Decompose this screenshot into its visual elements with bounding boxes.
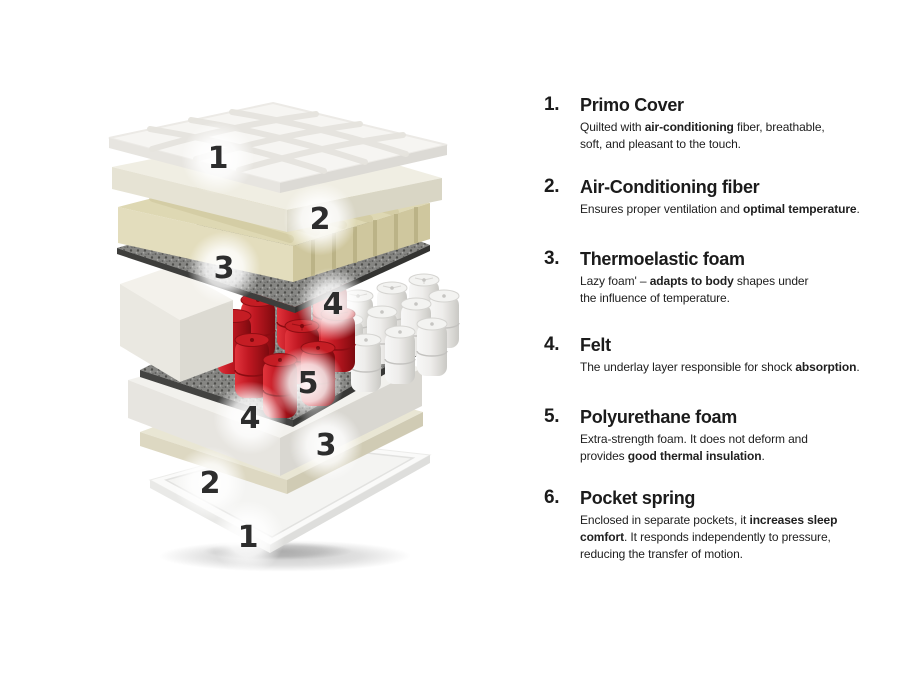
- legend-item-pocket-spring: 6. Pocket spring Enclosed in separate po…: [544, 487, 837, 563]
- badge-number: 1: [208, 141, 229, 176]
- legend-item-polyurethane-foam: 5. Polyurethane foam Extra-strength foam…: [544, 406, 808, 465]
- badge-number: 4: [323, 287, 344, 322]
- layer-badge-3-bottom: 3: [289, 408, 363, 482]
- badge-number: 2: [200, 466, 221, 501]
- item-description: Enclosed in separate pockets, it increas…: [580, 512, 837, 563]
- layer-badge-4-bottom: 4: [213, 381, 287, 455]
- legend-item-felt: 4. Felt The underlay layer responsible f…: [544, 334, 860, 376]
- infographic: 1 2 3 4 5 4 3 2 1 1. Primo Cover Quilted…: [0, 0, 900, 675]
- legend-item-primo-cover: 1. Primo Cover Quilted with air-conditio…: [544, 94, 825, 153]
- item-title: Thermoelastic foam: [580, 248, 808, 270]
- item-description: Extra-strength foam. It does not deform …: [580, 431, 808, 465]
- layer-badge-1-top: 1: [181, 121, 255, 195]
- item-description: The underlay layer responsible for shock…: [580, 359, 860, 376]
- item-number: 5.: [544, 406, 580, 428]
- item-number: 1.: [544, 94, 580, 116]
- item-description: Ensures proper ventilation and optimal t…: [580, 201, 860, 218]
- legend-item-thermoelastic-foam: 3. Thermoelastic foam Lazy foam' – adapt…: [544, 248, 808, 307]
- badge-number: 3: [214, 251, 235, 286]
- item-title: Primo Cover: [580, 94, 825, 116]
- badge-number: 4: [240, 401, 261, 436]
- pocket-spring-white: [351, 334, 381, 392]
- layer-badge-4-top: 4: [296, 267, 370, 341]
- pocket-spring-white: [417, 318, 447, 376]
- layer-badge-2-top: 2: [283, 182, 357, 256]
- item-number: 2.: [544, 176, 580, 198]
- layer-badge-1-bottom: 1: [211, 500, 285, 574]
- item-title: Felt: [580, 334, 860, 356]
- item-title: Air-Conditioning fiber: [580, 176, 860, 198]
- layers-legend: 1. Primo Cover Quilted with air-conditio…: [544, 0, 894, 675]
- pocket-spring-white: [385, 326, 415, 384]
- legend-item-air-conditioning-fiber: 2. Air-Conditioning fiber Ensures proper…: [544, 176, 860, 218]
- item-description: Lazy foam' – adapts to body shapes under…: [580, 273, 808, 307]
- item-description: Quilted with air-conditioning fiber, bre…: [580, 119, 825, 153]
- layer-badge-3-top: 3: [187, 231, 261, 305]
- badge-number: 2: [310, 202, 331, 237]
- item-number: 3.: [544, 248, 580, 270]
- item-number: 4.: [544, 334, 580, 356]
- badge-number: 5: [298, 366, 319, 401]
- item-title: Pocket spring: [580, 487, 837, 509]
- item-title: Polyurethane foam: [580, 406, 808, 428]
- badge-number: 1: [238, 520, 259, 555]
- badge-number: 3: [316, 428, 337, 463]
- item-number: 6.: [544, 487, 580, 509]
